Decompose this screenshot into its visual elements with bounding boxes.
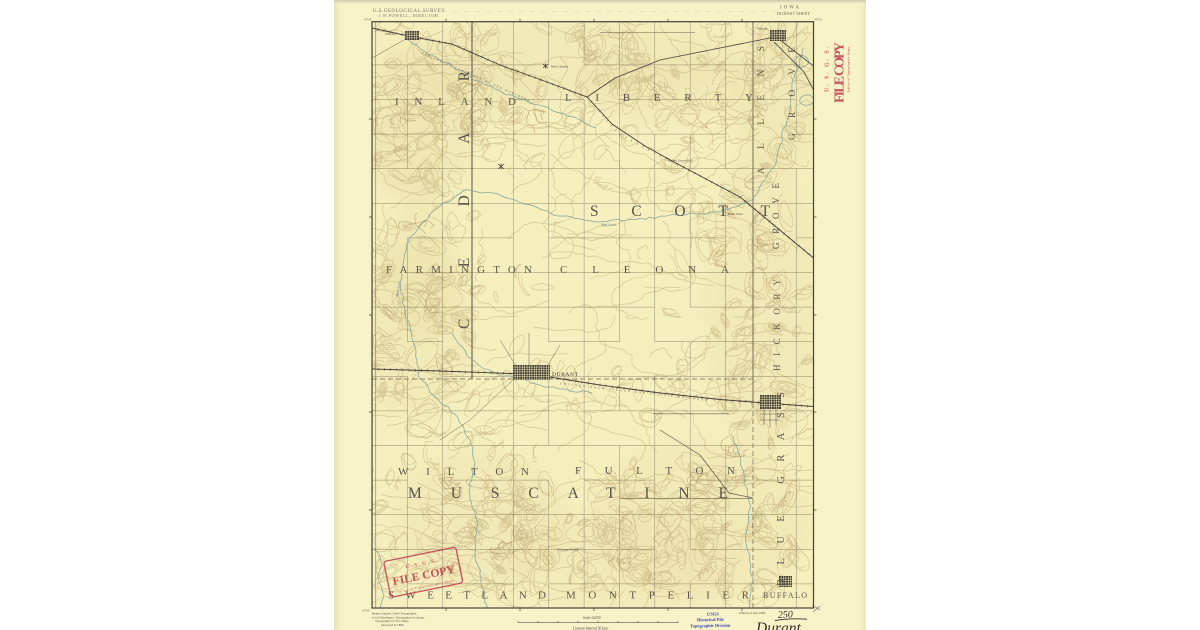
svg-text:SWEETLAND: SWEETLAND bbox=[388, 590, 546, 602]
svg-text:New Liberty: New Liberty bbox=[551, 65, 569, 69]
svg-text:Historical File: Historical File bbox=[697, 617, 724, 622]
svg-text:Pleasant Prairie: Pleasant Prairie bbox=[558, 548, 580, 552]
svg-text:U. S. G. S.: U. S. G. S. bbox=[825, 46, 831, 92]
svg-text:Round Grove P.O.: Round Grove P.O. bbox=[668, 159, 693, 163]
svg-text:41°30′: 41°30′ bbox=[362, 609, 370, 613]
svg-text:Mud Creek: Mud Creek bbox=[600, 223, 617, 227]
svg-text:Topographic Division: Topographic Division bbox=[690, 623, 731, 629]
svg-text:Editor of Topographic Maps.: Editor of Topographic Maps. bbox=[847, 46, 851, 92]
svg-text:FILE COPY: FILE COPY bbox=[833, 42, 848, 103]
svg-text:MUSCATINE: MUSCATINE bbox=[408, 485, 728, 502]
svg-text:Stockton: Stockton bbox=[739, 399, 751, 403]
svg-text:90°30′: 90°30′ bbox=[815, 18, 823, 22]
svg-text:Wilton: Wilton bbox=[385, 32, 395, 36]
svg-text:Contour Interval 20 feet.: Contour Interval 20 feet. bbox=[573, 627, 609, 630]
svg-text:Plain View: Plain View bbox=[728, 212, 743, 216]
svg-text:41°45′: 41°45′ bbox=[364, 18, 372, 22]
svg-text:Scale 62500: Scale 62500 bbox=[583, 616, 601, 620]
svg-text:DURANT: DURANT bbox=[552, 372, 579, 378]
svg-text:DURANT SHEET: DURANT SHEET bbox=[777, 11, 810, 16]
svg-text:Surveyed in 1885.: Surveyed in 1885. bbox=[381, 623, 404, 627]
svg-text:Edition of July 1890.: Edition of July 1890. bbox=[739, 611, 766, 615]
svg-text:IOWA: IOWA bbox=[780, 5, 799, 10]
svg-text:Walcott: Walcott bbox=[757, 27, 768, 31]
svg-text:Durant: Durant bbox=[755, 620, 801, 630]
svg-text:BUFFALO: BUFFALO bbox=[763, 591, 807, 600]
svg-text:USGS: USGS bbox=[707, 611, 720, 616]
